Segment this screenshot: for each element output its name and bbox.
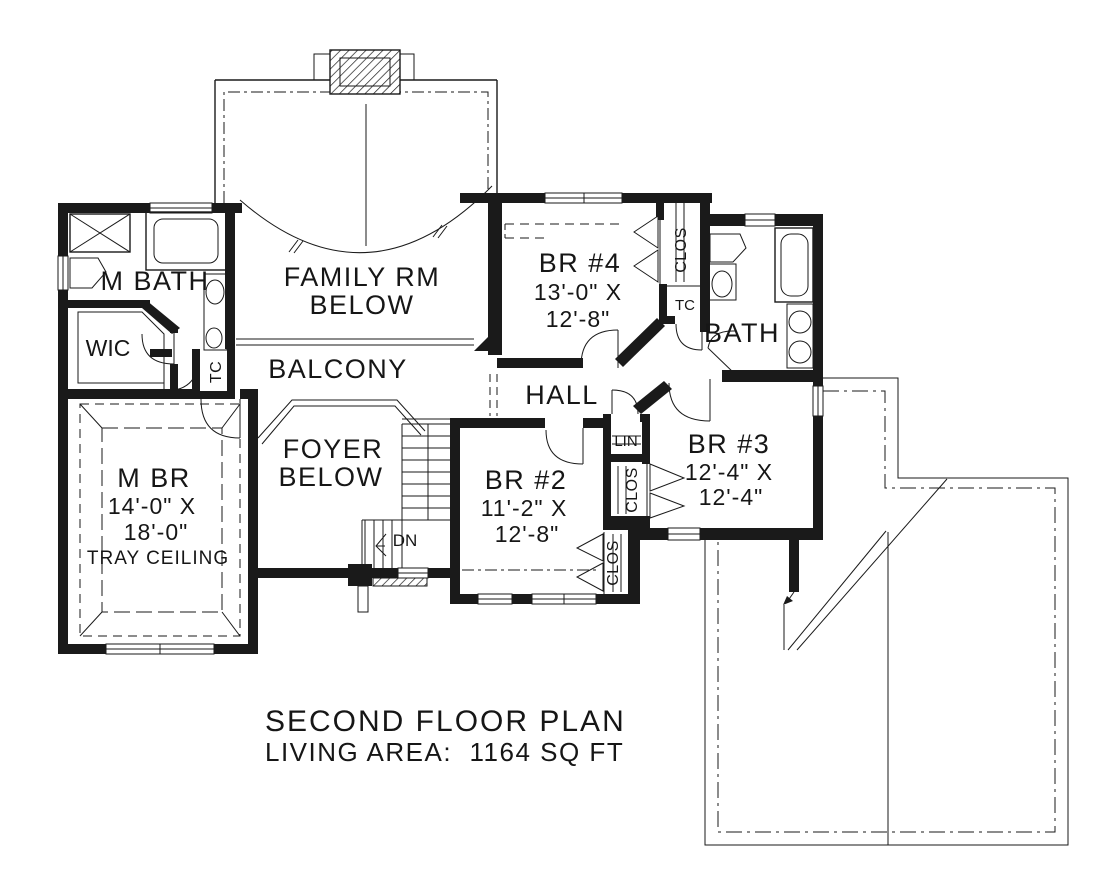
- br4-dim2: 12'-8": [546, 306, 611, 332]
- foyer-label-line2: BELOW: [278, 462, 383, 492]
- clos-br3-label: CLOS: [624, 467, 641, 513]
- m-br-dim2: 18'-0": [124, 519, 189, 545]
- family-room-open-below-outline: [215, 80, 497, 253]
- chimney: [314, 50, 414, 94]
- balcony-railing: [236, 339, 474, 345]
- bathtub-icon: [775, 228, 813, 302]
- foyer-label-line1: FOYER: [283, 434, 384, 464]
- door-swing: [546, 428, 583, 464]
- bifold-door-icon: [634, 250, 658, 282]
- m-bath-label: M BATH: [101, 266, 210, 296]
- stairs-dn-label: DN: [393, 531, 418, 550]
- br2-dim1: 11'-2" X: [481, 495, 568, 521]
- window: [398, 568, 428, 578]
- plan-living-area: LIVING AREA: 1164 SQ FT: [265, 737, 624, 767]
- m-br-tray-note: TRAY CEILING: [87, 548, 229, 569]
- bifold-door-icon: [577, 563, 603, 591]
- window: [745, 214, 775, 226]
- floor-plan-drawing: M BATH WIC TC FAMILY RM BELOW BALCONY BR…: [0, 0, 1100, 890]
- plan-title: SECOND FLOOR PLAN: [265, 705, 626, 738]
- window: [813, 386, 823, 416]
- door-swing: [676, 324, 702, 350]
- window: [478, 594, 512, 604]
- tc-left-label: TC: [208, 361, 225, 383]
- bifold-door-icon: [577, 534, 603, 561]
- m-br-dim1: 14'-0" X: [108, 493, 196, 519]
- balcony-label: BALCONY: [268, 354, 408, 384]
- door-swing: [669, 379, 710, 421]
- window: [545, 193, 622, 203]
- tc-right-label: TC: [675, 297, 695, 314]
- window: [58, 256, 68, 290]
- family-rm-label-line1: FAMILY RM: [284, 262, 441, 292]
- shower-icon: [70, 214, 130, 252]
- sink-icon: [710, 234, 746, 262]
- door-swing: [581, 330, 618, 368]
- clos-br4-label: CLOS: [673, 227, 690, 273]
- window: [106, 644, 214, 654]
- toilet-icon: [708, 264, 736, 300]
- bifold-door-icon: [634, 216, 658, 248]
- title-block: SECOND FLOOR PLAN LIVING AREA: 1164 SQ F…: [265, 705, 626, 767]
- window: [668, 528, 700, 540]
- bathtub-icon: [146, 212, 226, 270]
- door-swing: [142, 332, 174, 364]
- family-rm-label-line2: BELOW: [309, 290, 414, 320]
- br3-dim2: 12'-4": [699, 484, 764, 510]
- br2-dim2: 12'-8": [495, 521, 560, 547]
- m-br-label: M BR: [117, 463, 191, 493]
- door-swing: [612, 390, 638, 414]
- br3-label: BR #3: [688, 429, 771, 459]
- br3-dim1: 12'-4" X: [685, 459, 773, 485]
- br4-label: BR #4: [539, 248, 622, 278]
- bifold-door-icon: [650, 493, 684, 518]
- br2-label: BR #2: [485, 465, 568, 495]
- hall-label: HALL: [525, 380, 599, 410]
- lin-label: LIN: [614, 433, 637, 450]
- door-swing: [201, 399, 240, 438]
- double-vanity-icon: [787, 304, 813, 368]
- clos-br2-label: CLOS: [605, 540, 622, 586]
- br4-dim1: 13'-0" X: [534, 279, 622, 305]
- floor-plan-page: M BATH WIC TC FAMILY RM BELOW BALCONY BR…: [0, 0, 1100, 890]
- window: [532, 594, 596, 604]
- bath-label: BATH: [704, 318, 780, 348]
- wic-label: WIC: [86, 335, 131, 361]
- bifold-door-icon: [650, 464, 684, 491]
- arrow-icon: [783, 596, 793, 605]
